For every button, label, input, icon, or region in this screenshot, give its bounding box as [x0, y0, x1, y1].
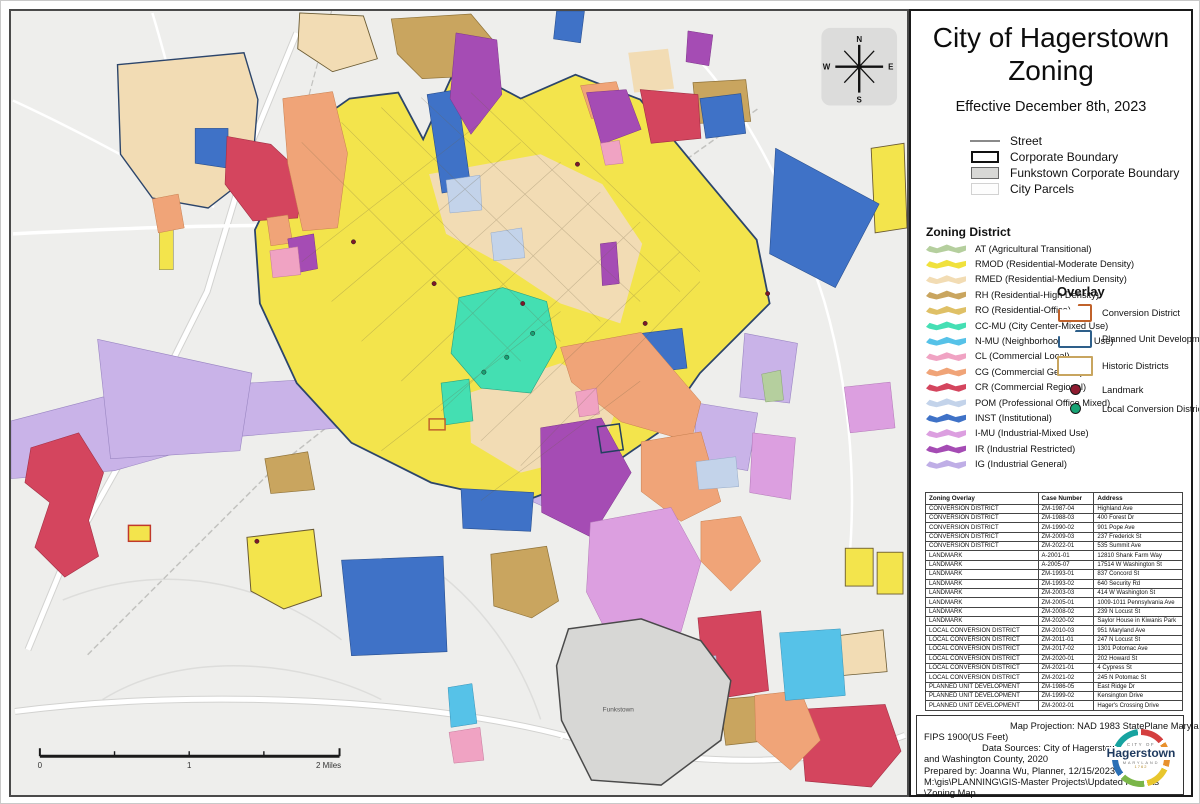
pud-swatch	[1057, 330, 1093, 348]
table-row: LANDMARK ZM-1993-01 837 Concord St	[926, 570, 1183, 579]
map-sheet: Funkstown	[0, 0, 1200, 804]
zoning-legend-item: RMOD (Residential-Moderate Density)	[926, 256, 1134, 271]
cell-zoning-overlay: LANDMARK	[926, 570, 1039, 579]
zoning-swatch	[926, 321, 966, 331]
cell-zoning-overlay: LANDMARK	[926, 617, 1039, 626]
cell-case-number: ZM-1999-02	[1038, 692, 1094, 701]
cell-case-number: ZM-1987-04	[1038, 504, 1094, 513]
table-row: CONVERSION DISTRICT ZM-1990-02 901 Pope …	[926, 523, 1183, 532]
cell-case-number: ZM-1993-02	[1038, 579, 1094, 588]
cell-case-number: ZM-2020-02	[1038, 617, 1094, 626]
cell-address: 237 Frederick St	[1094, 532, 1183, 541]
cell-case-number: ZM-2009-03	[1038, 532, 1094, 541]
city-parcels-label: City Parcels	[1010, 182, 1074, 196]
zoning-swatch	[926, 428, 966, 438]
cell-case-number: ZM-1990-02	[1038, 523, 1094, 532]
cell-address: 247 N Locust St	[1094, 635, 1183, 644]
legend-planned-unit-development: Planned Unit Development	[1057, 330, 1193, 348]
zoning-overlay-table: Zoning Overlay Case Number Address CONVE…	[925, 492, 1183, 711]
overlay-header: Overlay	[1057, 284, 1193, 299]
table-row: PLANNED UNIT DEVELOPMENT ZM-1999-02 Kens…	[926, 692, 1183, 701]
cell-case-number: ZM-2008-02	[1038, 607, 1094, 616]
cell-zoning-overlay: PLANNED UNIT DEVELOPMENT	[926, 692, 1039, 701]
table-row: LOCAL CONVERSION DISTRICT ZM-2021-01 4 C…	[926, 663, 1183, 672]
historic-districts-swatch	[1057, 356, 1093, 376]
map-info-box: Map Projection: NAD 1983 StatePlane Mary…	[916, 715, 1184, 795]
zoning-swatch	[926, 305, 966, 315]
table-header-row: Zoning Overlay Case Number Address	[926, 493, 1183, 505]
legend-corporate-boundary: Corporate Boundary	[969, 149, 1179, 165]
legend-street: Street	[969, 133, 1179, 149]
city-parcels-swatch	[969, 183, 1001, 195]
compass-e: E	[888, 63, 893, 72]
corporate-boundary-label: Corporate Boundary	[1010, 150, 1118, 164]
pud-label: Planned Unit Development	[1102, 334, 1200, 344]
logo-name: Hagerstown	[1106, 747, 1177, 760]
table-row: LANDMARK ZM-2005-01 1009-1011 Pennsylvan…	[926, 598, 1183, 607]
zoning-swatch	[926, 398, 966, 408]
cell-address: 245 N Potomac St	[1094, 673, 1183, 682]
cell-address: 400 Forest Dr	[1094, 513, 1183, 522]
corporate-boundary-swatch	[969, 151, 1001, 163]
cell-address: Kensington Drive	[1094, 692, 1183, 701]
cell-case-number: ZM-2020-01	[1038, 654, 1094, 663]
legend-funkstown-boundary: Funkstown Corporate Boundary	[969, 165, 1179, 181]
cell-case-number: ZM-2017-02	[1038, 645, 1094, 654]
map-title-line1: City of Hagerstown	[911, 21, 1191, 54]
zoning-swatch	[926, 259, 966, 269]
cell-address: Highland Ave	[1094, 504, 1183, 513]
funkstown-boundary-swatch	[969, 167, 1001, 179]
cell-address: 12810 Shank Farm Way	[1094, 551, 1183, 560]
zoning-legend-item: IG (Industrial General)	[926, 456, 1134, 471]
cell-address: 17514 W Washington St	[1094, 560, 1183, 569]
zoning-legend-item: IR (Industrial Restricted)	[926, 441, 1134, 456]
zoning-legend-item: I-MU (Industrial-Mixed Use)	[926, 426, 1134, 441]
cell-address: 4 Cypress St	[1094, 663, 1183, 672]
cell-zoning-overlay: CONVERSION DISTRICT	[926, 523, 1039, 532]
cell-zoning-overlay: CONVERSION DISTRICT	[926, 542, 1039, 551]
cell-address: 901 Pope Ave	[1094, 523, 1183, 532]
legend-landmark: Landmark	[1057, 384, 1193, 395]
overlay-legend: Overlay Conversion District Planned Unit…	[1057, 284, 1193, 422]
legend-historic-districts: Historic Districts	[1057, 356, 1193, 376]
cell-zoning-overlay: PLANNED UNIT DEVELOPMENT	[926, 701, 1039, 710]
cell-case-number: ZM-1986-05	[1038, 682, 1094, 691]
cell-address: 837 Concord St	[1094, 570, 1183, 579]
cell-zoning-overlay: CONVERSION DISTRICT	[926, 532, 1039, 541]
zoning-label: I-MU (Industrial-Mixed Use)	[975, 428, 1089, 438]
info-line: \Zoning Map	[924, 788, 1176, 799]
table-row: LANDMARK A-2005-07 17514 W Washington St	[926, 560, 1183, 569]
table-row: CONVERSION DISTRICT ZM-1987-04 Highland …	[926, 504, 1183, 513]
cell-address: 239 N Locust St	[1094, 607, 1183, 616]
legend-panel: City of Hagerstown Zoning Effective Dece…	[909, 9, 1193, 797]
local-conversion-label: Local Conversion District	[1102, 404, 1200, 414]
cell-address: 1009-1011 Pennsylvania Ave	[1094, 598, 1183, 607]
zone-agricultural	[762, 370, 784, 402]
zoning-legend-item: AT (Agricultural Transitional)	[926, 241, 1134, 256]
cell-address: 414 W Washington St	[1094, 588, 1183, 597]
cell-zoning-overlay: LOCAL CONVERSION DISTRICT	[926, 645, 1039, 654]
landmark-dot-icon	[1057, 384, 1093, 395]
cell-case-number: ZM-2021-01	[1038, 663, 1094, 672]
cell-zoning-overlay: LOCAL CONVERSION DISTRICT	[926, 626, 1039, 635]
table-row: LANDMARK ZM-2003-03 414 W Washington St	[926, 588, 1183, 597]
cell-case-number: ZM-2002-01	[1038, 701, 1094, 710]
zoning-swatch	[926, 351, 966, 361]
scale-label-1: 1	[187, 761, 192, 770]
table-row: LANDMARK ZM-2020-02 Saylor House in Kiwa…	[926, 617, 1183, 626]
table-row: LANDMARK A-2001-01 12810 Shank Farm Way	[926, 551, 1183, 560]
cell-zoning-overlay: LANDMARK	[926, 607, 1039, 616]
cell-case-number: ZM-2003-03	[1038, 588, 1094, 597]
cell-address: 951 Maryland Ave	[1094, 626, 1183, 635]
cell-case-number: A-2005-07	[1038, 560, 1094, 569]
zoning-label: IG (Industrial General)	[975, 459, 1067, 469]
table-row: PLANNED UNIT DEVELOPMENT ZM-1986-05 East…	[926, 682, 1183, 691]
cell-zoning-overlay: CONVERSION DISTRICT	[926, 513, 1039, 522]
table-row: PLANNED UNIT DEVELOPMENT ZM-2002-01 Hage…	[926, 701, 1183, 710]
landmark-label: Landmark	[1102, 385, 1143, 395]
zoning-label: RMOD (Residential-Moderate Density)	[975, 259, 1134, 269]
cell-address: 202 Howard St	[1094, 654, 1183, 663]
hagerstown-logo: CITY OF Hagerstown MARYLAND 1762	[1105, 728, 1177, 788]
legend-local-conversion: Local Conversion District	[1057, 403, 1193, 414]
conversion-district-label: Conversion District	[1102, 308, 1180, 318]
zoning-swatch	[926, 290, 966, 300]
zoning-swatch	[926, 336, 966, 346]
zoning-swatch	[926, 367, 966, 377]
cell-zoning-overlay: LOCAL CONVERSION DISTRICT	[926, 663, 1039, 672]
table-row: CONVERSION DISTRICT ZM-1988-03 400 Fores…	[926, 513, 1183, 522]
cell-case-number: ZM-2005-01	[1038, 598, 1094, 607]
table-row: CONVERSION DISTRICT ZM-2009-03 237 Frede…	[926, 532, 1183, 541]
zoning-swatch	[926, 444, 966, 454]
zoning-label: AT (Agricultural Transitional)	[975, 244, 1091, 254]
zoning-label: IR (Industrial Restricted)	[975, 444, 1075, 454]
street-label: Street	[1010, 134, 1042, 148]
zoning-district-header: Zoning District	[926, 225, 1011, 239]
cell-address: Saylor House in Kiwanis Park	[1094, 617, 1183, 626]
header-zoning-overlay: Zoning Overlay	[926, 493, 1039, 505]
zoning-swatch	[926, 459, 966, 469]
cell-address: East Ridge Dr	[1094, 682, 1183, 691]
cell-case-number: ZM-2022-01	[1038, 542, 1094, 551]
table-row: LOCAL CONVERSION DISTRICT ZM-2021-02 245…	[926, 673, 1183, 682]
cell-case-number: ZM-2010-03	[1038, 626, 1094, 635]
table-row: LANDMARK ZM-1993-02 640 Security Rd	[926, 579, 1183, 588]
table-row: LOCAL CONVERSION DISTRICT ZM-2020-01 202…	[926, 654, 1183, 663]
cell-zoning-overlay: CONVERSION DISTRICT	[926, 504, 1039, 513]
cell-zoning-overlay: LANDMARK	[926, 598, 1039, 607]
table-row: LOCAL CONVERSION DISTRICT ZM-2017-02 130…	[926, 645, 1183, 654]
table-row: CONVERSION DISTRICT ZM-2022-01 535 Summi…	[926, 542, 1183, 551]
header-case-number: Case Number	[1038, 493, 1094, 505]
funkstown-boundary-label: Funkstown Corporate Boundary	[1010, 166, 1179, 180]
cell-zoning-overlay: LOCAL CONVERSION DISTRICT	[926, 654, 1039, 663]
local-conversion-dot-icon	[1057, 403, 1093, 414]
zoning-label: CL (Commercial Local)	[975, 351, 1070, 361]
compass-n: N	[856, 35, 862, 44]
compass-s: S	[857, 96, 862, 105]
table-row: LOCAL CONVERSION DISTRICT ZM-2010-03 951…	[926, 626, 1183, 635]
cell-address: 640 Security Rd	[1094, 579, 1183, 588]
zoning-label: RMED (Residential-Medium Density)	[975, 274, 1127, 284]
cell-case-number: ZM-1988-03	[1038, 513, 1094, 522]
table-row: LOCAL CONVERSION DISTRICT ZM-2011-01 247…	[926, 635, 1183, 644]
map-title-line2: Zoning	[911, 54, 1191, 87]
cell-address: 1301 Potomac Ave	[1094, 645, 1183, 654]
funkstown-label: Funkstown	[603, 706, 635, 713]
compass-w: W	[823, 63, 831, 72]
overlay-table-wrap: Zoning Overlay Case Number Address CONVE…	[925, 492, 1183, 711]
cell-zoning-overlay: LANDMARK	[926, 579, 1039, 588]
compass-rose: N S W E	[821, 28, 897, 106]
map-title: City of Hagerstown Zoning	[911, 21, 1191, 87]
zoning-swatch	[926, 413, 966, 423]
zoning-label: INST (Institutional)	[975, 413, 1052, 423]
cell-zoning-overlay: LANDMARK	[926, 551, 1039, 560]
cell-address: Hager's Crossing Drive	[1094, 701, 1183, 710]
cell-case-number: A-2001-01	[1038, 551, 1094, 560]
cell-zoning-overlay: LANDMARK	[926, 560, 1039, 569]
zoning-swatch	[926, 244, 966, 254]
cell-address: 535 Summit Ave	[1094, 542, 1183, 551]
header-address: Address	[1094, 493, 1183, 505]
boundary-legend: Street Corporate Boundary Funkstown Corp…	[969, 133, 1179, 197]
cell-zoning-overlay: PLANNED UNIT DEVELOPMENT	[926, 682, 1039, 691]
cell-case-number: ZM-1993-01	[1038, 570, 1094, 579]
logo-year: 1762	[1105, 765, 1177, 770]
scale-label-0: 0	[38, 761, 43, 770]
legend-city-parcels: City Parcels	[969, 181, 1179, 197]
table-row: LANDMARK ZM-2008-02 239 N Locust St	[926, 607, 1183, 616]
zoning-swatch	[926, 274, 966, 284]
cell-case-number: ZM-2021-02	[1038, 673, 1094, 682]
zoning-map: Funkstown	[11, 11, 907, 795]
zoning-swatch	[926, 382, 966, 392]
cell-zoning-overlay: LANDMARK	[926, 588, 1039, 597]
scale-label-2: 2 Miles	[316, 761, 341, 770]
cell-zoning-overlay: LOCAL CONVERSION DISTRICT	[926, 673, 1039, 682]
cell-case-number: ZM-2011-01	[1038, 635, 1094, 644]
map-area: Funkstown	[9, 9, 909, 797]
street-line-swatch	[969, 140, 1001, 142]
conversion-district-swatch	[1057, 304, 1093, 322]
effective-date: Effective December 8th, 2023	[911, 99, 1191, 115]
legend-conversion-district: Conversion District	[1057, 304, 1193, 322]
cell-zoning-overlay: LOCAL CONVERSION DISTRICT	[926, 635, 1039, 644]
historic-districts-label: Historic Districts	[1102, 361, 1169, 371]
